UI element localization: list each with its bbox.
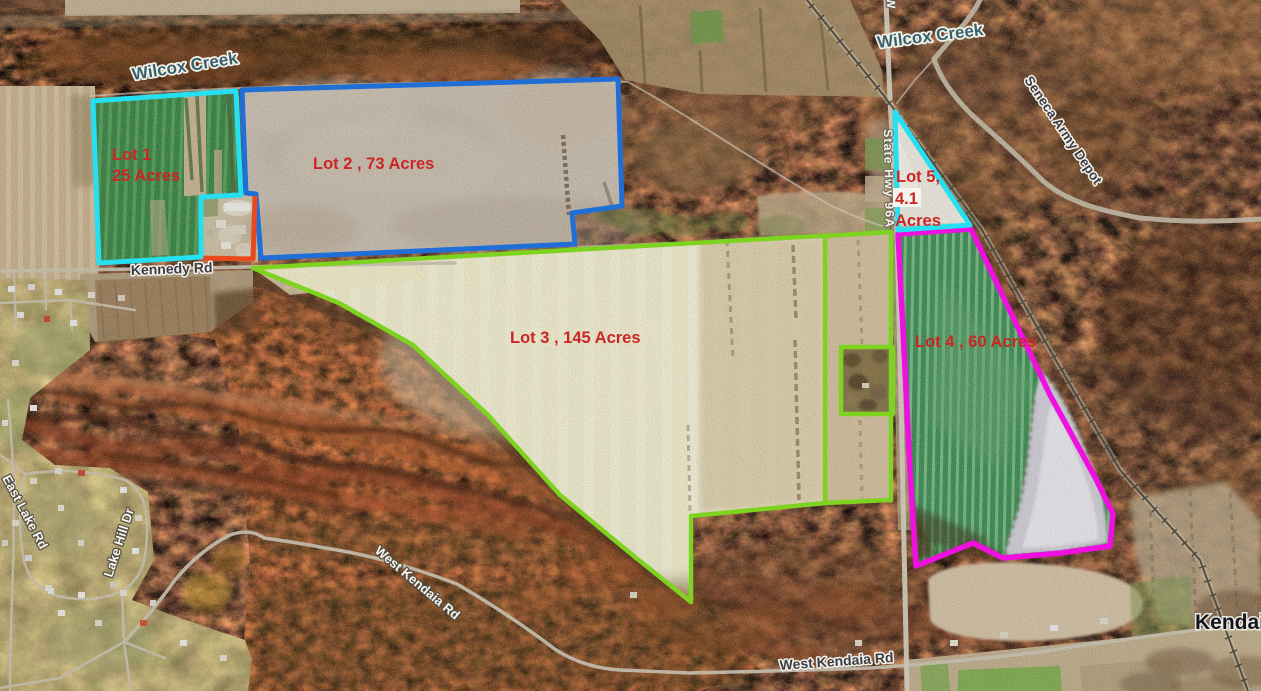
svg-text:25 Acres: 25 Acres <box>112 167 180 185</box>
svg-text:Lot 1: Lot 1 <box>112 146 151 164</box>
svg-text:4.1: 4.1 <box>895 190 918 208</box>
svg-text:Kendaia: Kendaia <box>1195 611 1261 634</box>
svg-text:W: W <box>884 0 898 9</box>
svg-text:Lot 2 , 73 Acres: Lot 2 , 73 Acres <box>313 155 434 173</box>
svg-text:Kennedy Rd: Kennedy Rd <box>131 259 213 278</box>
svg-text:Lot 4 , 60 Acres: Lot 4 , 60 Acres <box>915 333 1036 351</box>
svg-text:Acres: Acres <box>895 212 941 230</box>
svg-text:Lot 3 , 145 Acres: Lot 3 , 145 Acres <box>510 329 641 347</box>
svg-text:Lot 5,: Lot 5, <box>896 168 940 186</box>
